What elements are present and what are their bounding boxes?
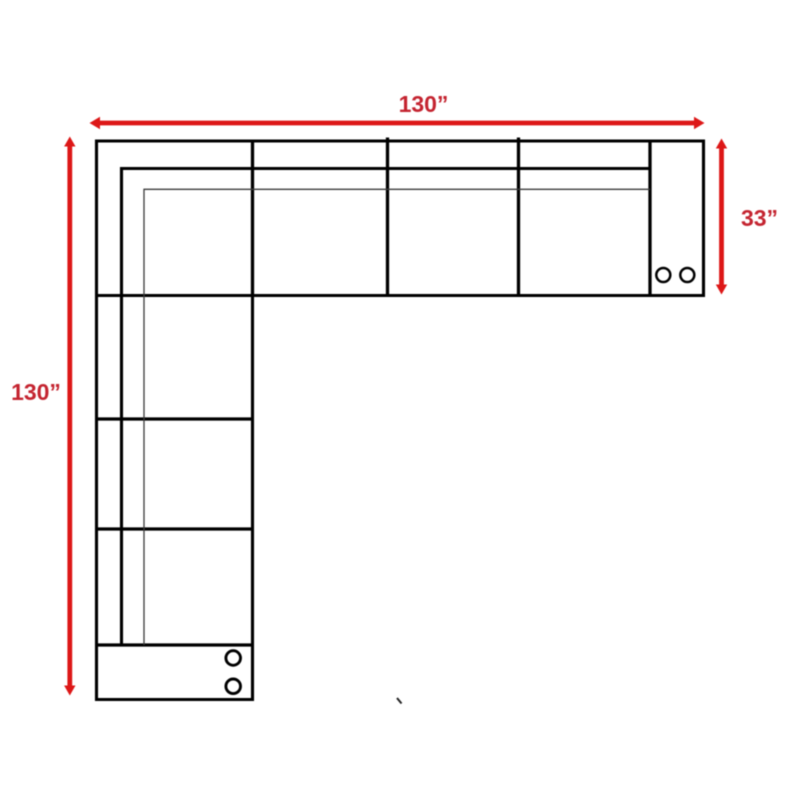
svg-text:130”: 130” [11,379,61,405]
svg-text:130”: 130” [399,91,449,117]
svg-text:33”: 33” [741,205,778,231]
